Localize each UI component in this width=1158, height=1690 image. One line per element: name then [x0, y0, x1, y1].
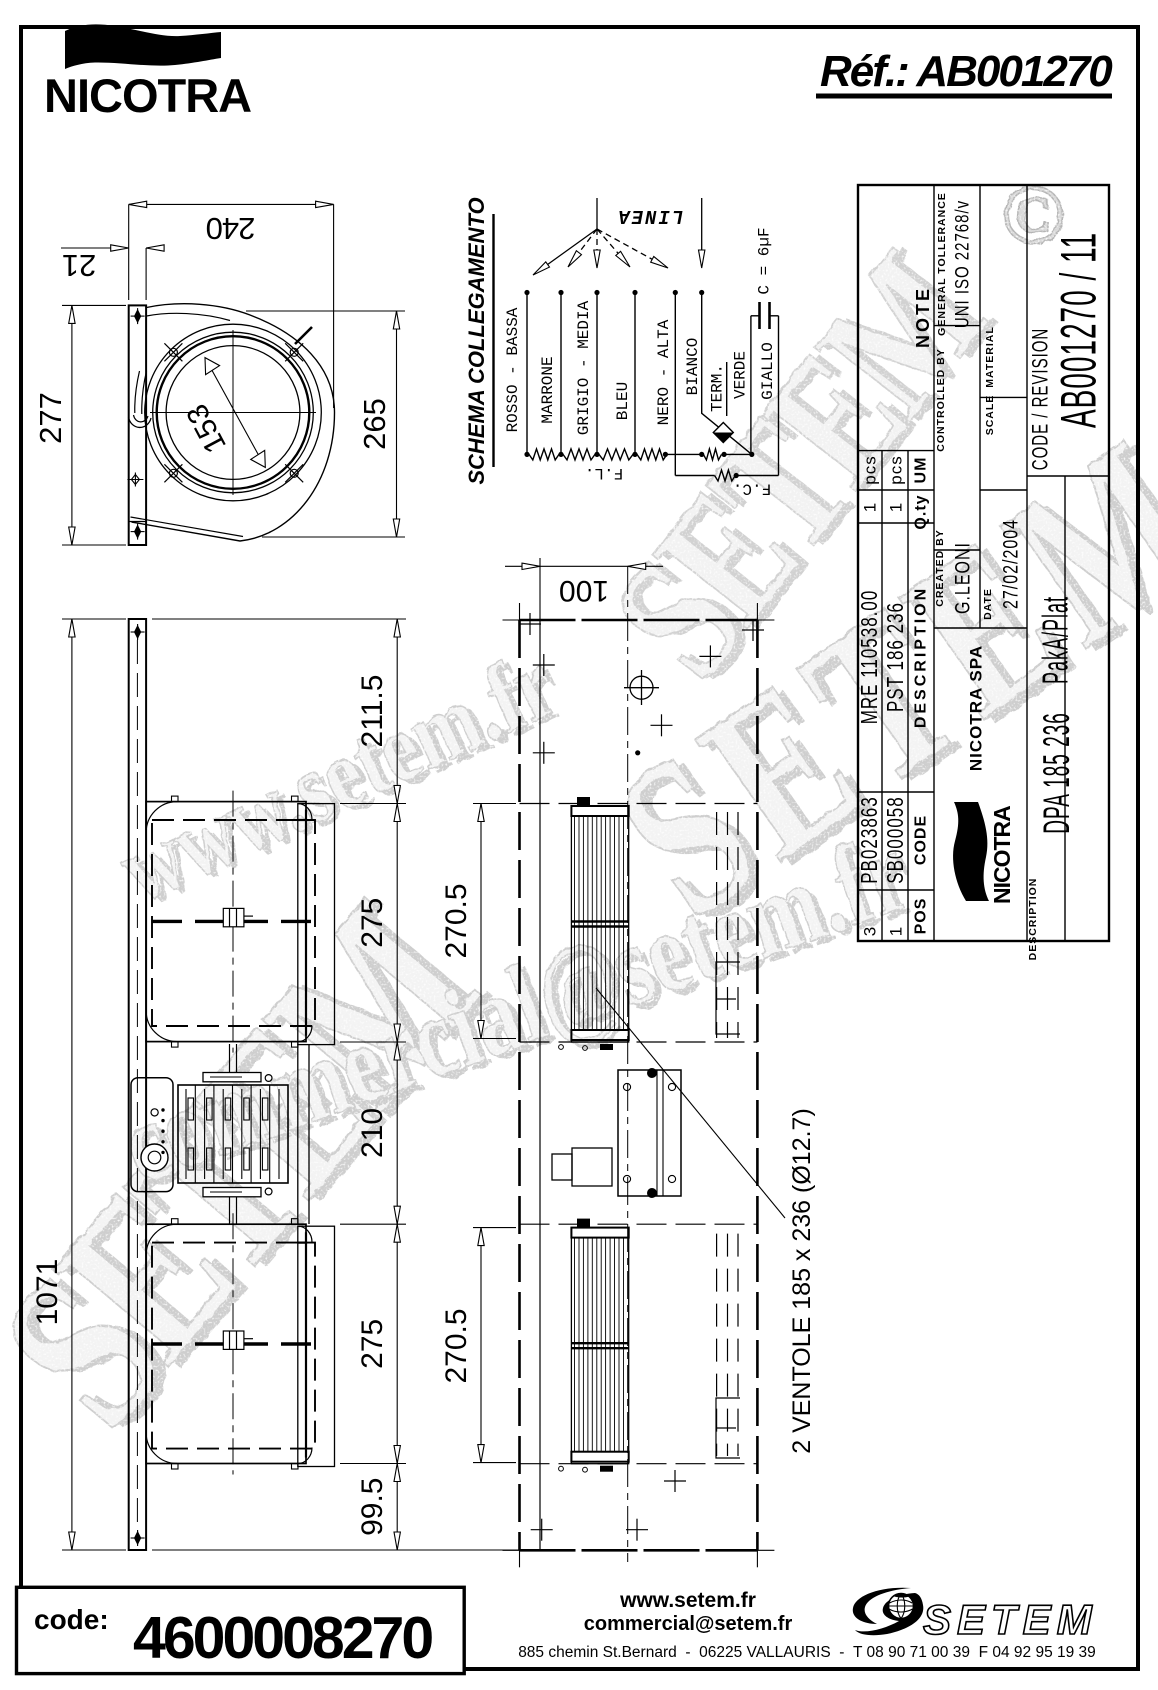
svg-text:SCALE: SCALE	[984, 395, 996, 436]
svg-text:VERDE: VERDE	[732, 351, 750, 399]
svg-text:BIANCO: BIANCO	[684, 338, 702, 396]
svg-text:TERM.: TERM.	[709, 364, 727, 412]
svg-text:PakA/Plat: PakA/Plat	[1036, 596, 1076, 684]
svg-text:CREATED BY: CREATED BY	[934, 529, 946, 606]
svg-text:NICOTRA: NICOTRA	[44, 69, 251, 122]
svg-text:LINEA: LINEA	[616, 205, 683, 227]
svg-text:DATE: DATE	[982, 588, 994, 620]
svg-text:SB000058: SB000058	[883, 796, 908, 883]
svg-text:CODE: CODE	[913, 815, 930, 865]
svg-text:ROSSO - BASSA: ROSSO - BASSA	[504, 307, 522, 432]
svg-text:NERO - ALTA: NERO - ALTA	[655, 319, 673, 425]
svg-text:153: 153	[180, 399, 233, 459]
svg-text:MATERIAL: MATERIAL	[984, 326, 996, 387]
svg-text:Réf.: AB001270: Réf.: AB001270	[820, 47, 1113, 96]
svg-text:277: 277	[33, 392, 68, 444]
svg-text:GRIGIO - MEDIA: GRIGIO - MEDIA	[575, 300, 593, 435]
svg-text:210: 210	[356, 1108, 389, 1158]
svg-text:275: 275	[356, 898, 389, 948]
svg-text:1071: 1071	[31, 1259, 64, 1326]
svg-text:1: 1	[861, 502, 880, 512]
svg-text:UM: UM	[913, 457, 930, 484]
svg-text:99.5: 99.5	[356, 1478, 389, 1536]
svg-text:PB023863: PB023863	[857, 796, 882, 883]
svg-text:NOTE: NOTE	[913, 286, 933, 348]
svg-text:NICOTRA SPA: NICOTRA SPA	[967, 645, 986, 771]
svg-text:Q.ty: Q.ty	[913, 494, 930, 529]
svg-text:UNI ISO 22768/v: UNI ISO 22768/v	[951, 200, 973, 328]
svg-text:NICOTRA: NICOTRA	[989, 806, 1015, 904]
svg-text:F.C.: F.C.	[733, 480, 771, 498]
svg-text:SCHEMA COLLEGAMENTO: SCHEMA COLLEGAMENTO	[464, 197, 489, 484]
svg-text:AB001270 / 11: AB001270 / 11	[1050, 232, 1107, 428]
svg-text:pcs: pcs	[861, 455, 880, 484]
svg-text:code:: code:	[34, 1604, 109, 1635]
svg-text:1: 1	[887, 926, 906, 936]
svg-text:F.L.: F.L.	[585, 464, 623, 482]
svg-text:GIALLO: GIALLO	[759, 342, 777, 400]
svg-text:2 VENTOLE 185 x 236 (Ø12.7): 2 VENTOLE 185 x 236 (Ø12.7)	[788, 1108, 816, 1454]
svg-text:27/02/2004: 27/02/2004	[999, 519, 1023, 609]
svg-text:240: 240	[206, 211, 255, 246]
svg-text:SETEM: SETEM	[923, 1596, 1098, 1643]
svg-text:GENERAL TOLLERANCE: GENERAL TOLLERANCE	[936, 192, 948, 336]
svg-text:3: 3	[861, 926, 880, 936]
svg-text:21: 21	[62, 248, 96, 283]
svg-text:MARRONE: MARRONE	[539, 356, 557, 423]
svg-text:C = 6µF: C = 6µF	[756, 227, 774, 294]
svg-text:4600008270: 4600008270	[133, 1605, 432, 1671]
svg-text:CONTROLLED BY: CONTROLLED BY	[935, 348, 947, 451]
svg-text:PST 186 236: PST 186 236	[883, 602, 908, 712]
svg-text:275: 275	[356, 1319, 389, 1369]
svg-text:100: 100	[559, 574, 609, 607]
svg-text:DPA 185 236: DPA 185 236	[1036, 712, 1078, 834]
svg-text:G.LEONI: G.LEONI	[951, 542, 975, 614]
svg-text:1: 1	[887, 502, 906, 512]
svg-text:211.5: 211.5	[356, 675, 389, 748]
svg-text:265: 265	[357, 398, 392, 450]
svg-text:270.5: 270.5	[440, 1308, 473, 1383]
svg-text:DESCRIPTION: DESCRIPTION	[913, 586, 930, 728]
svg-text:885 chemin St.Bernard - 0622: 885 chemin St.Bernard - 06225 VALLAURIS …	[518, 1644, 1096, 1661]
svg-text:commercial@setem.fr: commercial@setem.fr	[584, 1613, 793, 1635]
svg-text:BLEU: BLEU	[614, 382, 632, 420]
svg-text:MRE 110538.00: MRE 110538.00	[857, 590, 882, 725]
svg-text:pcs: pcs	[887, 455, 906, 484]
svg-text:www.setem.fr: www.setem.fr	[619, 1589, 756, 1612]
svg-text:POS: POS	[913, 898, 930, 935]
svg-text:DESCRIPTION: DESCRIPTION	[1027, 878, 1039, 961]
svg-text:270.5: 270.5	[440, 883, 473, 958]
